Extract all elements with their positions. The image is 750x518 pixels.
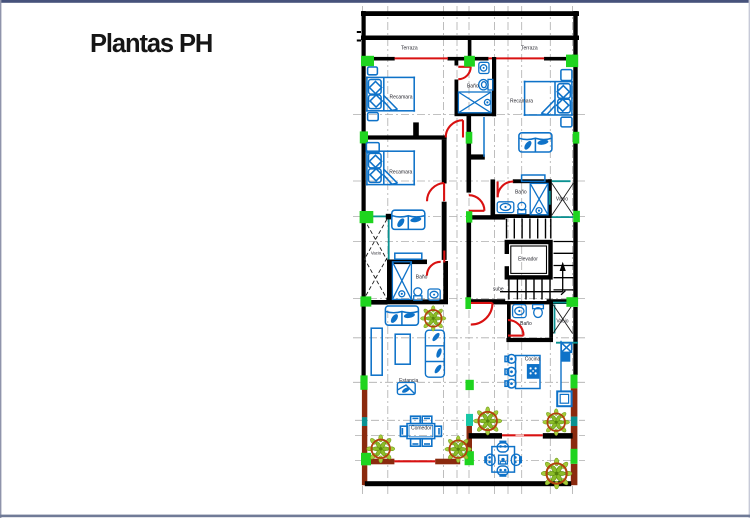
svg-text:sube: sube — [493, 287, 504, 293]
svg-text:Vacio: Vacio — [556, 318, 568, 324]
svg-text:Vacio: Vacio — [556, 196, 568, 202]
svg-text:Baño: Baño — [515, 190, 527, 196]
svg-text:Baño: Baño — [416, 275, 428, 281]
svg-text:Baño: Baño — [467, 84, 479, 90]
svg-text:Recamara: Recamara — [389, 95, 412, 101]
svg-text:Terraza: Terraza — [401, 46, 418, 52]
svg-text:Recamara: Recamara — [510, 99, 533, 105]
svg-text:Elevador: Elevador — [518, 257, 538, 263]
svg-text:Recamara: Recamara — [389, 170, 412, 176]
svg-text:Cocina: Cocina — [525, 357, 541, 363]
svg-text:Plantas PH: Plantas PH — [90, 30, 212, 58]
svg-text:Terraza: Terraza — [521, 46, 538, 52]
svg-text:Comedor: Comedor — [411, 426, 432, 432]
svg-text:Vacio: Vacio — [371, 251, 382, 256]
svg-text:Estancia: Estancia — [399, 378, 418, 384]
svg-text:Baño: Baño — [520, 321, 532, 327]
